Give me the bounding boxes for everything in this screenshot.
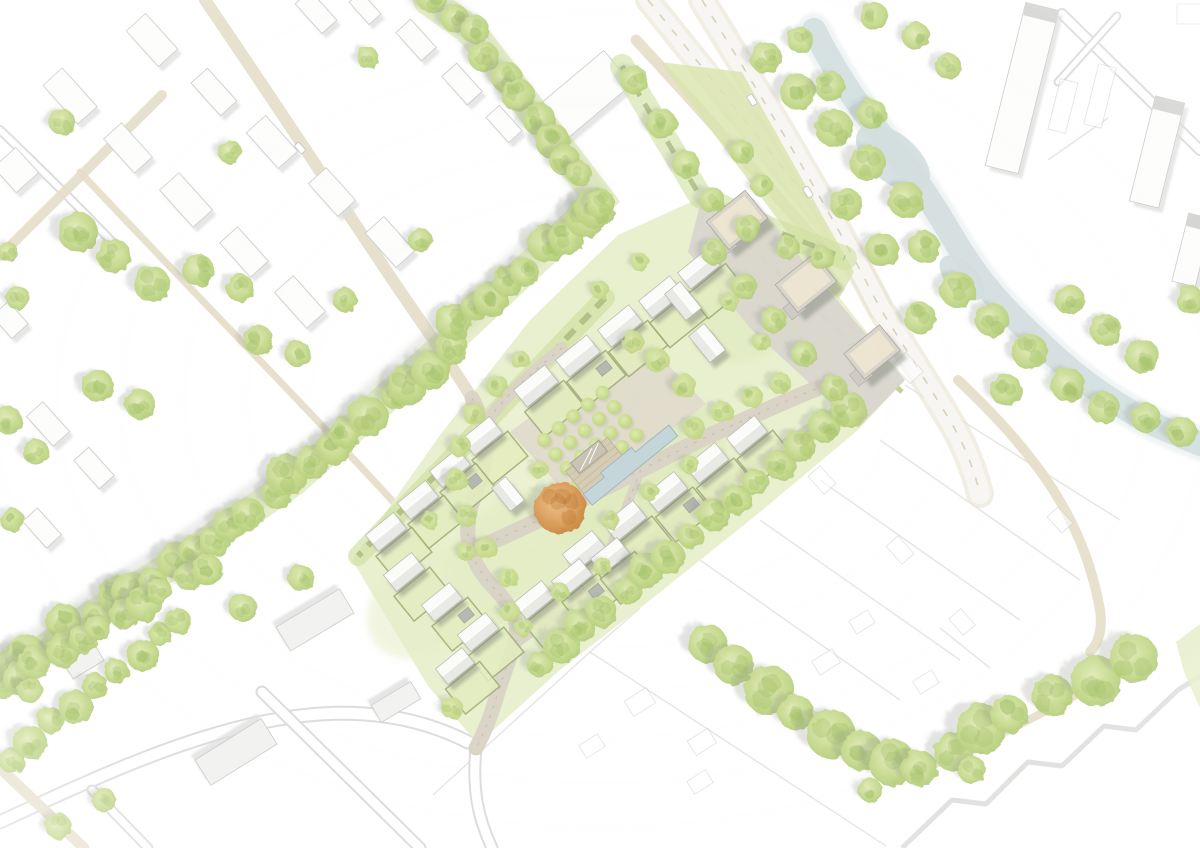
tree-foliage-clump	[99, 794, 108, 803]
tree-foliage-clump	[761, 180, 769, 188]
tree-foliage-clump	[443, 704, 451, 712]
tree-foliage-clump	[78, 640, 89, 651]
tree-foliage-clump	[25, 658, 38, 671]
tree-foliage-clump	[725, 299, 732, 306]
tree-foliage-clump	[779, 246, 788, 255]
tree-foliage-clump	[440, 340, 452, 352]
tree-foliage-clump	[113, 667, 122, 676]
tree-foliage-clump	[867, 153, 881, 167]
tree-foliage-clump	[736, 282, 746, 292]
tree-foliage-clump	[534, 663, 544, 673]
tree-foliage-clump	[247, 340, 258, 351]
tree-foliage-clump	[524, 626, 531, 633]
tree-foliage-clump	[26, 452, 36, 462]
tree-foliage-clump	[480, 544, 488, 552]
tree-foliage-clump	[6, 756, 16, 766]
tree-foliage-clump	[57, 816, 67, 826]
tree-foliage-clump	[153, 625, 162, 634]
orchard-tree	[629, 428, 643, 442]
tree-foliage-clump	[972, 767, 983, 778]
tree-foliage-clump	[178, 573, 188, 583]
tree-foliage-clump	[761, 673, 780, 692]
tree-foliage-clump	[471, 28, 482, 39]
tree-foliage-clump	[939, 750, 954, 765]
tree-foliage-clump	[1172, 429, 1183, 440]
tree-foliage-clump	[754, 57, 766, 69]
tree-foliage-clump	[833, 378, 843, 388]
tree-foliage-clump	[920, 236, 932, 248]
tree-foliage-clump	[139, 651, 151, 663]
tree-foliage-clump	[991, 321, 1004, 334]
tree-foliage-clump	[720, 660, 735, 675]
orchard-tree	[595, 386, 609, 400]
tree-foliage-clump	[465, 545, 472, 552]
tree-foliage-clump	[1118, 641, 1136, 659]
tree-foliage-clump	[1094, 396, 1106, 408]
tree-foliage-clump	[459, 509, 467, 517]
context-building-footprint	[1177, 4, 1200, 24]
tree-foliage-clump	[142, 284, 156, 298]
tree-foliage-clump	[1139, 413, 1150, 424]
tree-foliage-clump	[452, 706, 460, 714]
tree-foliage-clump	[140, 270, 154, 284]
orchard-tree	[581, 398, 595, 412]
tree-foliage-clump	[94, 381, 106, 393]
tree-foliage-clump	[745, 390, 753, 398]
tree-foliage-clump	[467, 510, 475, 518]
tree-foliage-clump	[599, 602, 611, 614]
tree-foliage-clump	[361, 415, 376, 430]
tree-foliage-clump	[775, 379, 783, 387]
tree-foliage-clump	[619, 590, 629, 600]
tree-foliage-clump	[910, 770, 924, 784]
tree-foliage-clump	[722, 405, 730, 413]
tree-foliage-clump	[952, 287, 966, 301]
tree-foliage-clump	[233, 280, 244, 291]
tree-foliage-clump	[940, 58, 950, 68]
tree-foliage-clump	[661, 550, 674, 563]
tree-foliage-clump	[205, 535, 216, 546]
tree-foliage-clump	[638, 566, 652, 580]
tree-foliage-clump	[6, 513, 15, 522]
tree-foliage-clump	[575, 623, 587, 635]
orchard-tree	[603, 426, 617, 440]
tree-foliage-clump	[34, 447, 44, 457]
tree-foliage-clump	[8, 248, 16, 256]
tree-foliage-clump	[294, 348, 304, 358]
tree-foliage-clump	[594, 286, 601, 293]
tree-foliage-clump	[52, 117, 62, 127]
tree-foliage-clump	[825, 427, 837, 439]
tree-foliage-clump	[712, 250, 722, 260]
tree-foliage-clump	[600, 560, 607, 567]
tree-foliage-clump	[785, 238, 794, 247]
tree-foliage-clump	[676, 386, 685, 395]
masterplan-svg	[0, 0, 1200, 848]
tree-foliage-clump	[864, 789, 873, 798]
tree-foliage-clump	[847, 397, 861, 411]
tree-foliage-clump	[248, 331, 259, 342]
tree-foliage-clump	[1183, 300, 1194, 311]
tree-foliage-clump	[755, 475, 765, 485]
tree-foliage-clump	[1038, 682, 1054, 698]
tree-foliage-clump	[706, 242, 716, 252]
tree-foliage-clump	[1133, 658, 1151, 676]
tree-foliage-clump	[637, 257, 644, 264]
tree-foliage-clump	[340, 298, 349, 307]
tree-foliage-clump	[963, 761, 974, 772]
tree-foliage-clump	[1, 420, 12, 431]
tree-foliage-clump	[225, 151, 234, 160]
tree-foliage-clump	[24, 742, 37, 755]
tree-foliage-clump	[573, 166, 582, 175]
tree-foliage-clump	[688, 461, 695, 468]
tree-canopy	[750, 42, 782, 74]
tree-foliage-clump	[92, 624, 102, 634]
tree-foliage-clump	[836, 204, 848, 216]
tree-foliage-clump	[153, 278, 167, 292]
tree-foliage-clump	[518, 622, 525, 629]
orchard-tree	[578, 424, 592, 438]
tree-foliage-clump	[460, 442, 468, 450]
tree-foliage-clump	[724, 497, 736, 509]
tree-foliage-clump	[415, 238, 424, 247]
tree-foliage-clump	[758, 343, 765, 350]
tree-foliage-clump	[235, 606, 246, 617]
tree-foliage-clump	[400, 381, 415, 396]
tree-foliage-clump	[53, 646, 66, 659]
tree-foliage-clump	[176, 612, 186, 622]
tree-foliage-clump	[472, 19, 483, 30]
tree-foliage-clump	[157, 587, 167, 597]
orchard-tree	[592, 412, 606, 426]
tree-foliage-clump	[681, 165, 692, 176]
tree-foliage-clump	[774, 319, 784, 329]
tree-foliage-clump	[708, 195, 718, 205]
tree-foliage-clump	[15, 292, 24, 301]
tree-foliage-clump	[657, 357, 666, 366]
tree-foliage-clump	[649, 489, 656, 496]
tree-foliage-clump	[421, 362, 436, 377]
tree-foliage-clump	[481, 47, 493, 59]
tree-foliage-clump	[462, 551, 469, 558]
tree-foliage-clump	[523, 261, 534, 272]
tree-foliage-clump	[470, 415, 478, 423]
tree-foliage-clump	[858, 164, 872, 178]
tree-foliage-clump	[1, 253, 9, 261]
tree-foliage-clump	[814, 252, 823, 261]
context-building	[1177, 4, 1200, 24]
tree-foliage-clump	[28, 681, 38, 691]
tree-foliage-clump	[482, 290, 495, 303]
tree-canopy	[1109, 634, 1158, 683]
tree-foliage-clump	[198, 270, 210, 282]
tree-foliage-clump	[335, 427, 347, 439]
tree-foliage-clump	[714, 409, 722, 417]
tree-foliage-clump	[789, 86, 803, 100]
tree-canopy	[902, 22, 930, 50]
tree-foliage-clump	[365, 55, 373, 63]
tree-foliage-clump	[571, 174, 580, 183]
tree-foliage-clump	[129, 591, 142, 604]
orchard-tree	[548, 447, 562, 461]
tree-foliage-clump	[894, 194, 908, 208]
tree-foliage-clump	[914, 35, 925, 46]
tree-foliage-clump	[800, 445, 812, 457]
tree-canopy	[515, 619, 533, 637]
tree-foliage-clump	[298, 573, 308, 583]
tree-foliage-clump	[609, 514, 616, 521]
tree-foliage-clump	[62, 122, 72, 132]
tree-foliage-clump	[828, 121, 842, 135]
tree-foliage-clump	[533, 467, 540, 474]
tree-foliage-clump	[197, 558, 209, 570]
tree-foliage-clump	[918, 312, 930, 324]
tree-foliage-clump	[1097, 324, 1109, 336]
tree-foliage-clump	[1114, 659, 1132, 677]
tree-foliage-clump	[1140, 357, 1153, 370]
tree-foliage-clump	[1087, 679, 1106, 698]
orchard-tree	[618, 414, 632, 428]
tree-foliage-clump	[828, 388, 838, 398]
tree-foliage-clump	[685, 528, 695, 538]
tree-foliage-clump	[149, 585, 159, 595]
tree-foliage-clump	[504, 576, 512, 584]
tree-foliage-clump	[800, 31, 810, 41]
orchard-tree	[552, 421, 566, 435]
tree-foliage-clump	[872, 112, 883, 123]
tree-foliage-clump	[995, 381, 1007, 393]
orchard-tree	[607, 400, 621, 414]
tree-foliage-clump	[448, 476, 456, 484]
tree-foliage-clump	[550, 643, 564, 657]
tree-foliage-clump	[875, 243, 888, 256]
tree-foliage-clump	[518, 357, 525, 364]
tree-foliage-clump	[1036, 696, 1052, 712]
tree-foliage-clump	[691, 423, 699, 431]
tree-foliage-clump	[506, 87, 519, 100]
tree-foliage-clump	[654, 114, 665, 125]
tree-foliage-clump	[248, 504, 261, 517]
tree-foliage-clump	[800, 434, 812, 446]
orange-foliage-clump	[561, 509, 577, 525]
orange-foliage-clump	[555, 489, 571, 505]
tree-foliage-clump	[560, 592, 567, 599]
page-root	[0, 0, 1200, 848]
tree-foliage-clump	[799, 354, 809, 364]
tree-foliage-clump	[752, 690, 771, 709]
tree-foliage-clump	[74, 230, 89, 245]
tree-foliage-clump	[546, 131, 559, 144]
tree-foliage-clump	[1061, 384, 1074, 397]
orchard-tree	[563, 435, 577, 449]
tree-foliage-clump	[775, 463, 786, 474]
tree-foliage-clump	[1071, 297, 1082, 308]
tree-foliage-clump	[834, 403, 848, 417]
tree-foliage-clump	[632, 338, 640, 346]
tree-foliage-clump	[594, 195, 605, 206]
tree-foliage-clump	[740, 151, 749, 160]
tree-foliage-clump	[133, 402, 144, 413]
tree-foliage-clump	[1024, 338, 1038, 352]
tree-foliage-clump	[742, 227, 752, 237]
tree-foliage-clump	[88, 681, 98, 691]
tree-foliage-clump	[1000, 700, 1014, 714]
orchard-tree	[566, 409, 580, 423]
tree-foliage-clump	[490, 379, 498, 387]
tree-foliage-clump	[765, 48, 777, 60]
tree-foliage-clump	[974, 728, 993, 747]
tree-foliage-clump	[504, 606, 512, 614]
tree-foliage-clump	[425, 514, 432, 521]
tree-foliage-clump	[67, 701, 80, 714]
tree-canopy	[601, 511, 619, 529]
tree-foliage-clump	[303, 455, 316, 468]
orchard-tree	[537, 433, 551, 447]
tree-foliage-clump	[635, 72, 646, 83]
tree-foliage-clump	[865, 12, 876, 23]
tree-foliage-clump	[106, 243, 119, 256]
tree-foliage-clump	[740, 218, 750, 228]
tree-foliage-clump	[820, 76, 831, 87]
tree-foliage-clump	[556, 234, 569, 247]
